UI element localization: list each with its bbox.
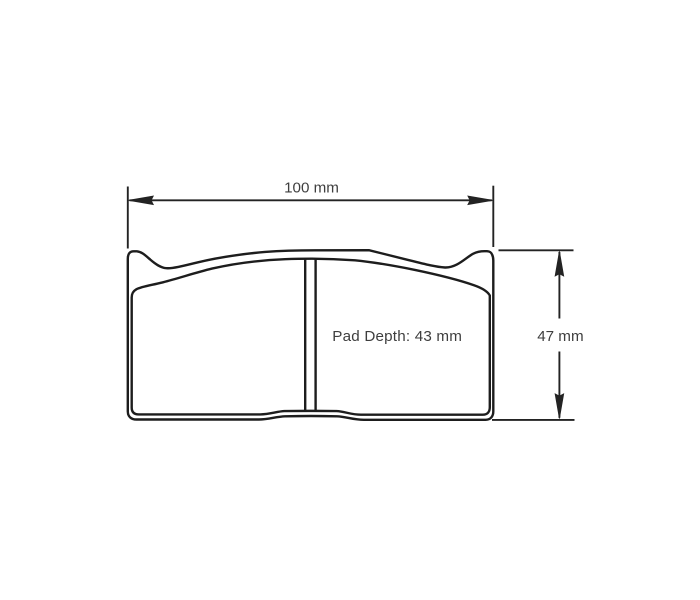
svg-text:Pad Depth: 43 mm: Pad Depth: 43 mm — [332, 328, 462, 345]
svg-text:47 mm: 47 mm — [537, 328, 583, 345]
svg-text:100 mm: 100 mm — [284, 180, 339, 197]
